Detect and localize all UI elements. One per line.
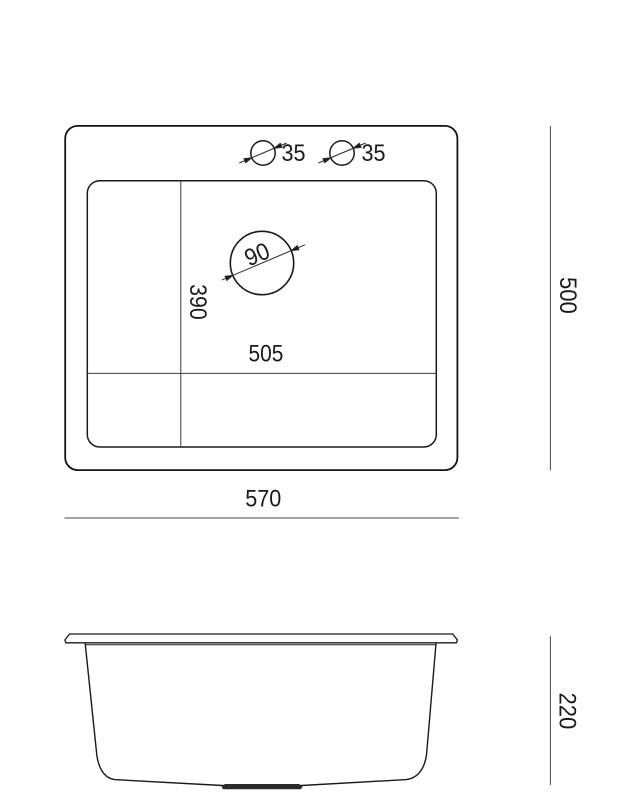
svg-text:90: 90 bbox=[240, 237, 273, 272]
svg-text:390: 390 bbox=[185, 284, 212, 320]
svg-text:35: 35 bbox=[282, 139, 306, 166]
svg-text:500: 500 bbox=[555, 277, 582, 314]
svg-text:220: 220 bbox=[554, 693, 581, 730]
svg-text:505: 505 bbox=[248, 340, 283, 367]
svg-text:570: 570 bbox=[245, 484, 281, 511]
svg-text:35: 35 bbox=[362, 139, 386, 166]
